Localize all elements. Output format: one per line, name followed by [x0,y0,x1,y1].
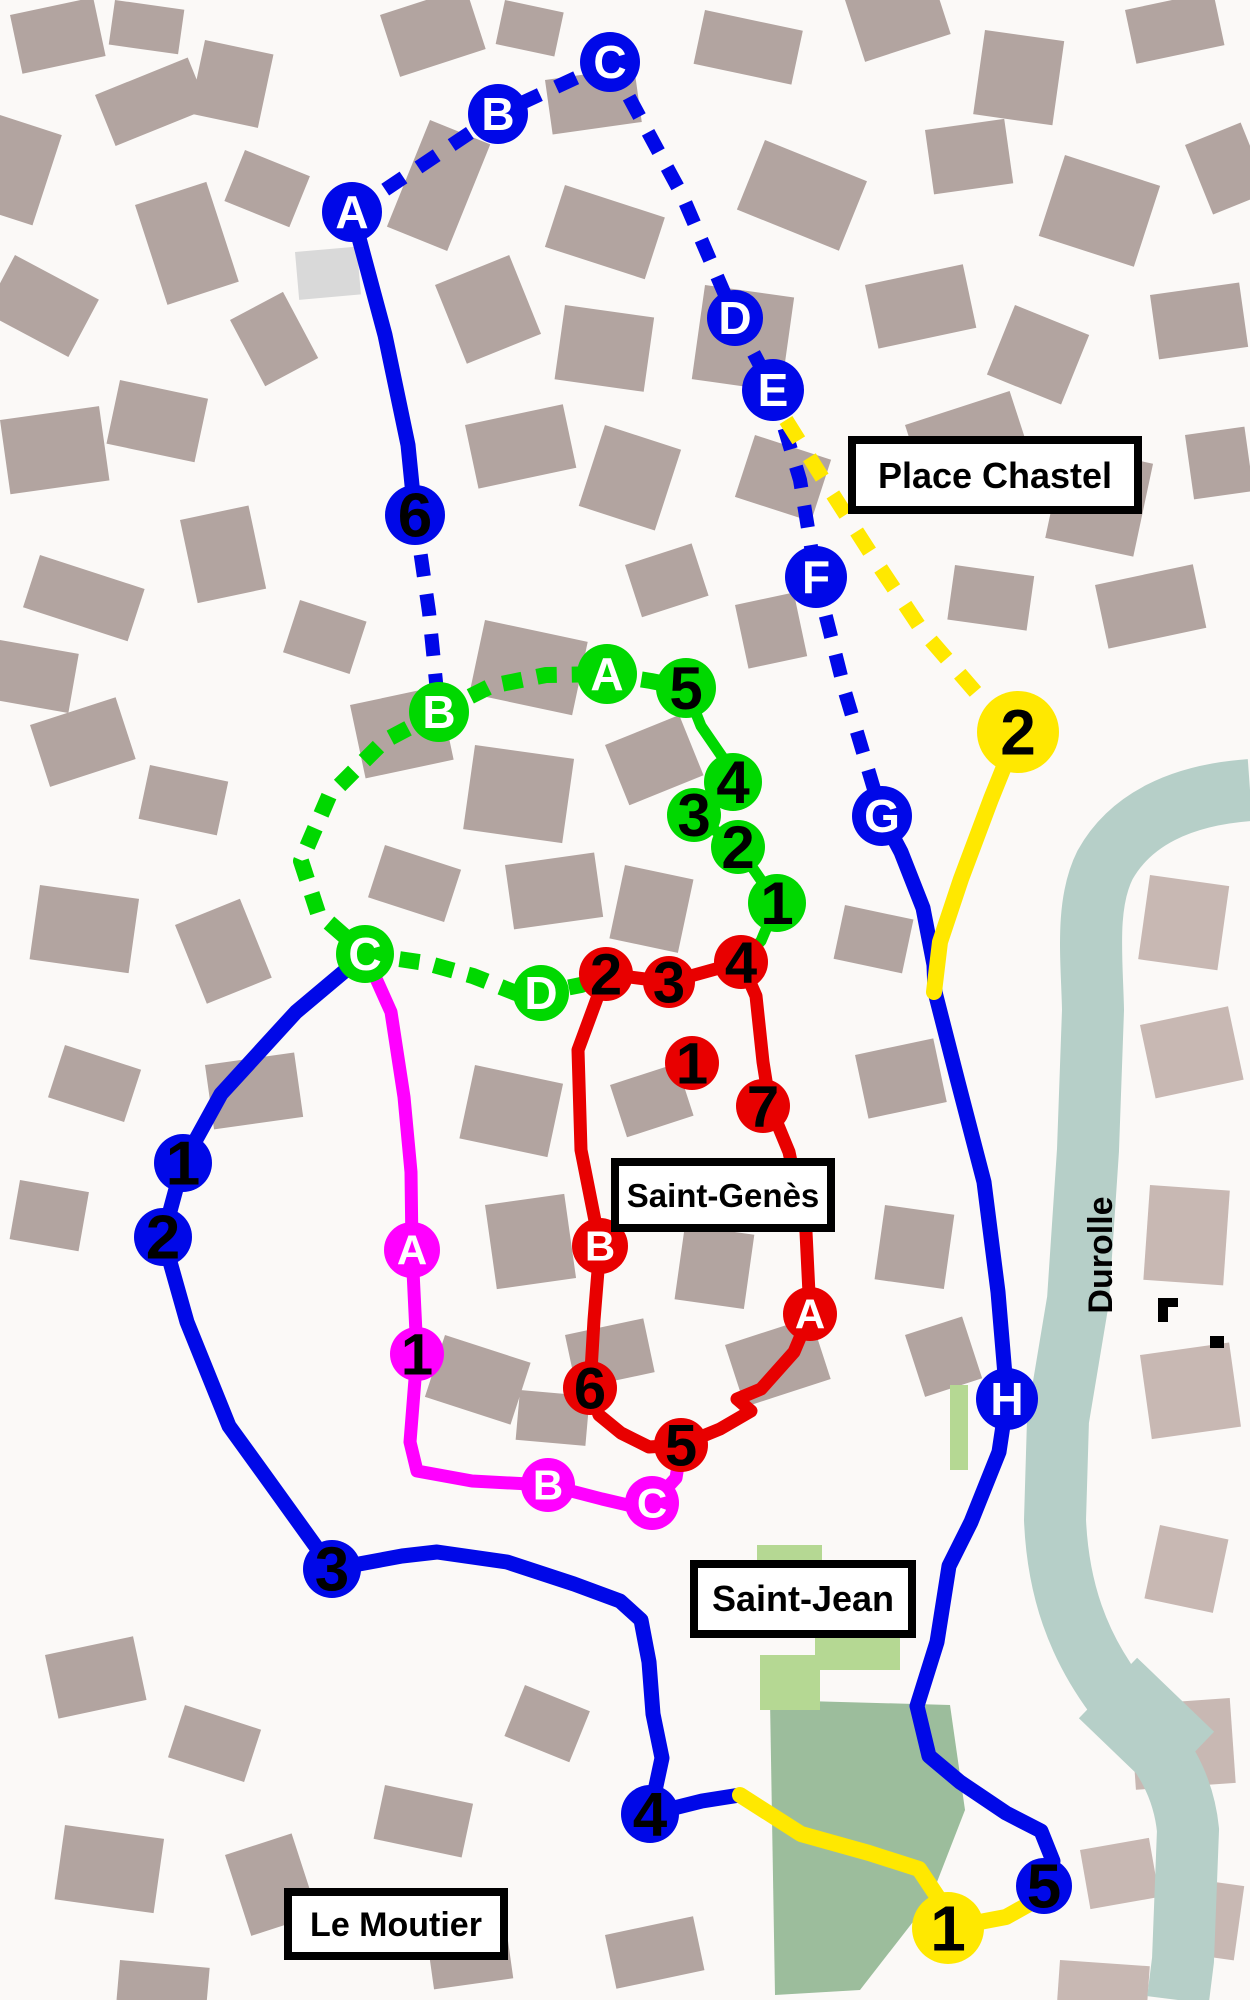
blue-stop-label: H [990,1373,1023,1425]
blue-stop-g: G [852,786,912,846]
place-label-saint-genes-text: Saint-Genès [627,1177,820,1214]
place-label-chastel-text: Place Chastel [878,455,1112,496]
yellow-stop-1: 1 [912,1892,984,1964]
blue-stop-label: 2 [146,1204,180,1273]
red-stop-label: 1 [676,1031,708,1096]
blue-stop-label: E [758,364,789,416]
green-stop-label: A [590,648,623,700]
red-stop-label: A [795,1291,825,1338]
green-stop-label: B [422,686,455,738]
green-stop-label: C [348,928,381,980]
magenta-stop-label: B [533,1462,563,1509]
red-stop-label: 4 [725,930,757,995]
blue-stop-label: B [481,88,514,140]
red-stop-label: 7 [747,1074,779,1139]
yellow-stop-label: 1 [930,1892,966,1964]
green-stop-label: 4 [716,749,750,816]
place-label-le-moutier: Le Moutier [288,1892,504,1956]
green-stop-label: 5 [669,655,702,722]
place-label-saint-jean-text: Saint-Jean [712,1578,894,1619]
green-stop-c: C [336,925,394,983]
place-label-chastel: Place Chastel [852,440,1138,510]
place-label-saint-jean: Saint-Jean [694,1564,912,1634]
map-canvas: ABCDEFGH61234521BACD54321A1BC23417BA65 P… [0,0,1250,2000]
red-stop-label: 3 [653,950,685,1015]
blue-stop-e: E [742,359,804,421]
red-stop-a: A [783,1287,837,1341]
blue-stop-f: F [785,546,847,608]
blue-stop-d: D [707,290,763,346]
blue-stop-label: G [864,790,900,842]
river-label: Durolle [1082,1196,1120,1313]
yellow-stop-2: 2 [977,691,1059,773]
blue-stop-label: 5 [1027,1853,1061,1922]
magenta-stop-a: A [384,1222,440,1278]
magenta-stop-label: C [637,1480,667,1527]
blue-stop-b: B [468,84,528,144]
green-stop-label: D [524,967,557,1019]
blue-stop-label: 4 [633,1781,668,1850]
green-stop-d: D [513,965,569,1021]
magenta-stop-c: C [625,1476,679,1530]
green-stop-a: A [577,644,637,704]
blue-stop-label: F [802,551,830,603]
red-stop-label: B [585,1223,615,1270]
magenta-stop-label: 1 [401,1322,433,1387]
place-label-saint-genes: Saint-Genès [615,1162,831,1228]
blue-stop-h: H [976,1368,1038,1430]
red-stop-label: 6 [574,1356,606,1421]
river-bulge [1108,1688,1185,1762]
blue-stop-label: D [718,292,751,344]
green-stop-b: B [409,682,469,742]
red-stop-label: 5 [665,1413,697,1478]
place-label-le-moutier-text: Le Moutier [310,1906,482,1944]
green-stop-label: 2 [721,814,754,881]
blue-stop-label: 1 [166,1130,200,1199]
green-stop-label: 3 [677,782,710,849]
city-map: ABCDEFGH61234521BACD54321A1BC23417BA65 P… [0,0,1250,2000]
red-stop-label: 2 [590,942,622,1007]
yellow-stop-label: 2 [1000,696,1036,768]
blue-stop-label: A [335,186,368,238]
blue-stop-a: A [322,182,382,242]
blue-stop-c: C [580,32,640,92]
magenta-stop-label: A [397,1227,427,1274]
blue-stop-label: C [593,36,626,88]
blue-stop-label: 3 [315,1536,349,1605]
green-stop-label: 1 [760,870,793,937]
magenta-stop-b: B [521,1458,575,1512]
blue-stop-label: 6 [398,482,432,551]
